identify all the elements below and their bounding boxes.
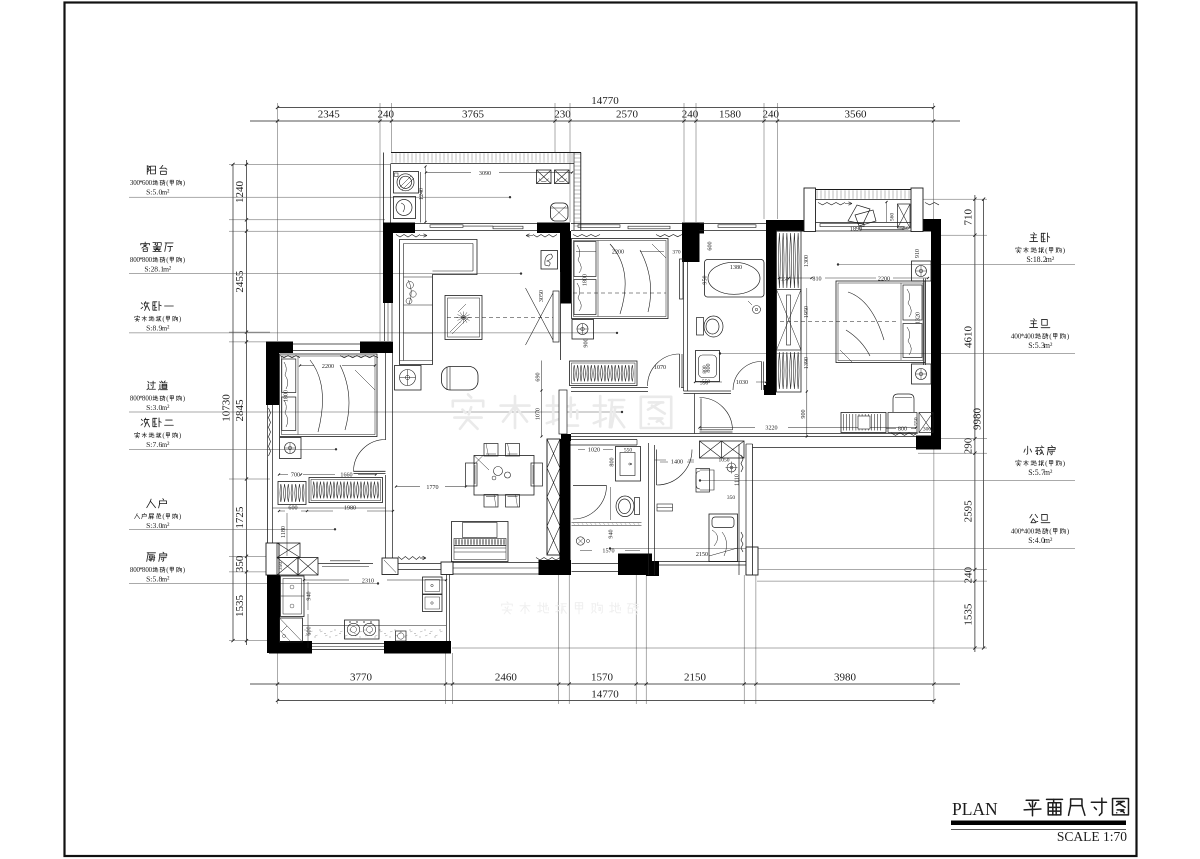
svg-text:m²: m² <box>1044 341 1053 350</box>
svg-text:2150: 2150 <box>684 672 707 684</box>
svg-text:0: 0 <box>1031 331 1035 340</box>
svg-text:1570: 1570 <box>602 549 614 555</box>
svg-text:1400: 1400 <box>671 460 683 466</box>
svg-text:1030: 1030 <box>736 380 748 386</box>
svg-text:600: 600 <box>288 506 297 512</box>
svg-text:1800: 1800 <box>284 390 290 402</box>
svg-text:300: 300 <box>923 427 932 433</box>
svg-text:2845: 2845 <box>234 399 246 422</box>
svg-text:3090: 3090 <box>479 171 491 177</box>
svg-text:0: 0 <box>149 257 153 264</box>
svg-text:550: 550 <box>900 226 909 232</box>
svg-text:900: 900 <box>801 409 807 418</box>
svg-text:1070: 1070 <box>654 365 666 371</box>
svg-text:m²: m² <box>1044 468 1053 477</box>
svg-text:m²: m² <box>161 440 170 449</box>
svg-text:2150: 2150 <box>696 552 708 558</box>
svg-text:230: 230 <box>554 109 571 121</box>
svg-text:1070: 1070 <box>536 408 542 420</box>
svg-text:1300: 1300 <box>804 255 810 267</box>
svg-text:3050: 3050 <box>539 290 545 302</box>
svg-text:1050: 1050 <box>719 458 730 464</box>
svg-text:800: 800 <box>898 427 907 433</box>
svg-text:3770: 3770 <box>350 672 373 684</box>
svg-text:940: 940 <box>307 591 313 600</box>
svg-text:240: 240 <box>762 109 779 121</box>
svg-text:690: 690 <box>536 372 542 381</box>
svg-text:290: 290 <box>963 437 975 454</box>
svg-text:910: 910 <box>915 249 921 258</box>
svg-text:600: 600 <box>708 241 714 250</box>
svg-text:1110: 1110 <box>735 474 741 486</box>
svg-text:700: 700 <box>291 473 300 479</box>
svg-text:): ) <box>183 257 185 264</box>
svg-text:350: 350 <box>727 495 736 501</box>
svg-text:1240: 1240 <box>234 181 246 204</box>
svg-text:2460: 2460 <box>495 672 518 684</box>
svg-text:1580: 1580 <box>719 109 742 121</box>
svg-text:1980: 1980 <box>344 506 356 512</box>
svg-text:2200: 2200 <box>612 250 624 256</box>
svg-text:710: 710 <box>963 208 975 225</box>
svg-text:2200: 2200 <box>322 364 334 370</box>
svg-text:2570: 2570 <box>616 109 639 121</box>
svg-text:PLAN: PLAN <box>952 799 998 819</box>
svg-text:m²: m² <box>161 187 170 196</box>
svg-text:550: 550 <box>624 448 633 454</box>
svg-text:): ) <box>183 395 185 402</box>
svg-text:600: 600 <box>307 626 313 635</box>
svg-text:800: 800 <box>702 365 708 374</box>
svg-text:940: 940 <box>609 529 615 538</box>
svg-text:1535: 1535 <box>963 603 975 626</box>
svg-text:1570: 1570 <box>591 672 614 684</box>
svg-text:3560: 3560 <box>845 109 868 121</box>
svg-text:1800: 1800 <box>583 274 589 286</box>
svg-text:0: 0 <box>149 180 153 187</box>
svg-text:): ) <box>183 180 185 187</box>
svg-text:2345: 2345 <box>318 109 341 121</box>
svg-text:560: 560 <box>890 213 896 222</box>
svg-text:1890: 1890 <box>850 227 862 233</box>
svg-text:m²: m² <box>161 574 170 583</box>
svg-text:3980: 3980 <box>834 672 857 684</box>
svg-text:550: 550 <box>914 417 920 426</box>
svg-text:m²: m² <box>163 264 172 273</box>
svg-text:1770: 1770 <box>426 485 438 491</box>
svg-text:900: 900 <box>584 338 590 347</box>
svg-text:9980: 9980 <box>971 408 983 431</box>
svg-text:550: 550 <box>780 277 789 283</box>
svg-text:1320: 1320 <box>916 312 922 324</box>
svg-text:m²: m² <box>1044 536 1053 545</box>
svg-text:): ) <box>179 513 181 520</box>
svg-text:3765: 3765 <box>462 109 485 121</box>
svg-text:3220: 3220 <box>765 426 777 432</box>
svg-text:350: 350 <box>278 562 284 571</box>
svg-text:2200: 2200 <box>878 277 890 283</box>
svg-text:1725: 1725 <box>234 506 246 529</box>
svg-text:1380: 1380 <box>730 265 742 271</box>
svg-text:810: 810 <box>812 277 821 283</box>
svg-text:370: 370 <box>672 250 681 256</box>
svg-text:2310: 2310 <box>362 579 374 585</box>
svg-text:1240: 1240 <box>419 188 425 200</box>
svg-text:): ) <box>179 316 181 323</box>
svg-text:1020: 1020 <box>588 448 600 454</box>
svg-text:1535: 1535 <box>234 595 246 618</box>
svg-text:350: 350 <box>234 555 246 572</box>
svg-text:0: 0 <box>149 395 153 402</box>
svg-text:0: 0 <box>1031 526 1035 535</box>
svg-text:m²: m² <box>1046 255 1055 264</box>
svg-text:2595: 2595 <box>963 500 975 523</box>
svg-text:m²: m² <box>161 521 170 530</box>
svg-text:): ) <box>179 432 181 439</box>
svg-text:4610: 4610 <box>963 326 975 349</box>
svg-text:14770: 14770 <box>591 689 619 701</box>
svg-text:14770: 14770 <box>591 95 619 107</box>
svg-text:m²: m² <box>161 323 170 332</box>
svg-text:950: 950 <box>703 275 709 284</box>
svg-text:10730: 10730 <box>221 394 233 422</box>
svg-text:): ) <box>183 567 185 574</box>
svg-text:m²: m² <box>161 403 170 412</box>
svg-text:SCALE 1:70: SCALE 1:70 <box>1057 829 1127 844</box>
svg-text:0: 0 <box>149 567 153 574</box>
svg-text:550: 550 <box>700 381 709 387</box>
svg-text:800: 800 <box>610 457 616 466</box>
svg-text:1180: 1180 <box>281 526 287 538</box>
